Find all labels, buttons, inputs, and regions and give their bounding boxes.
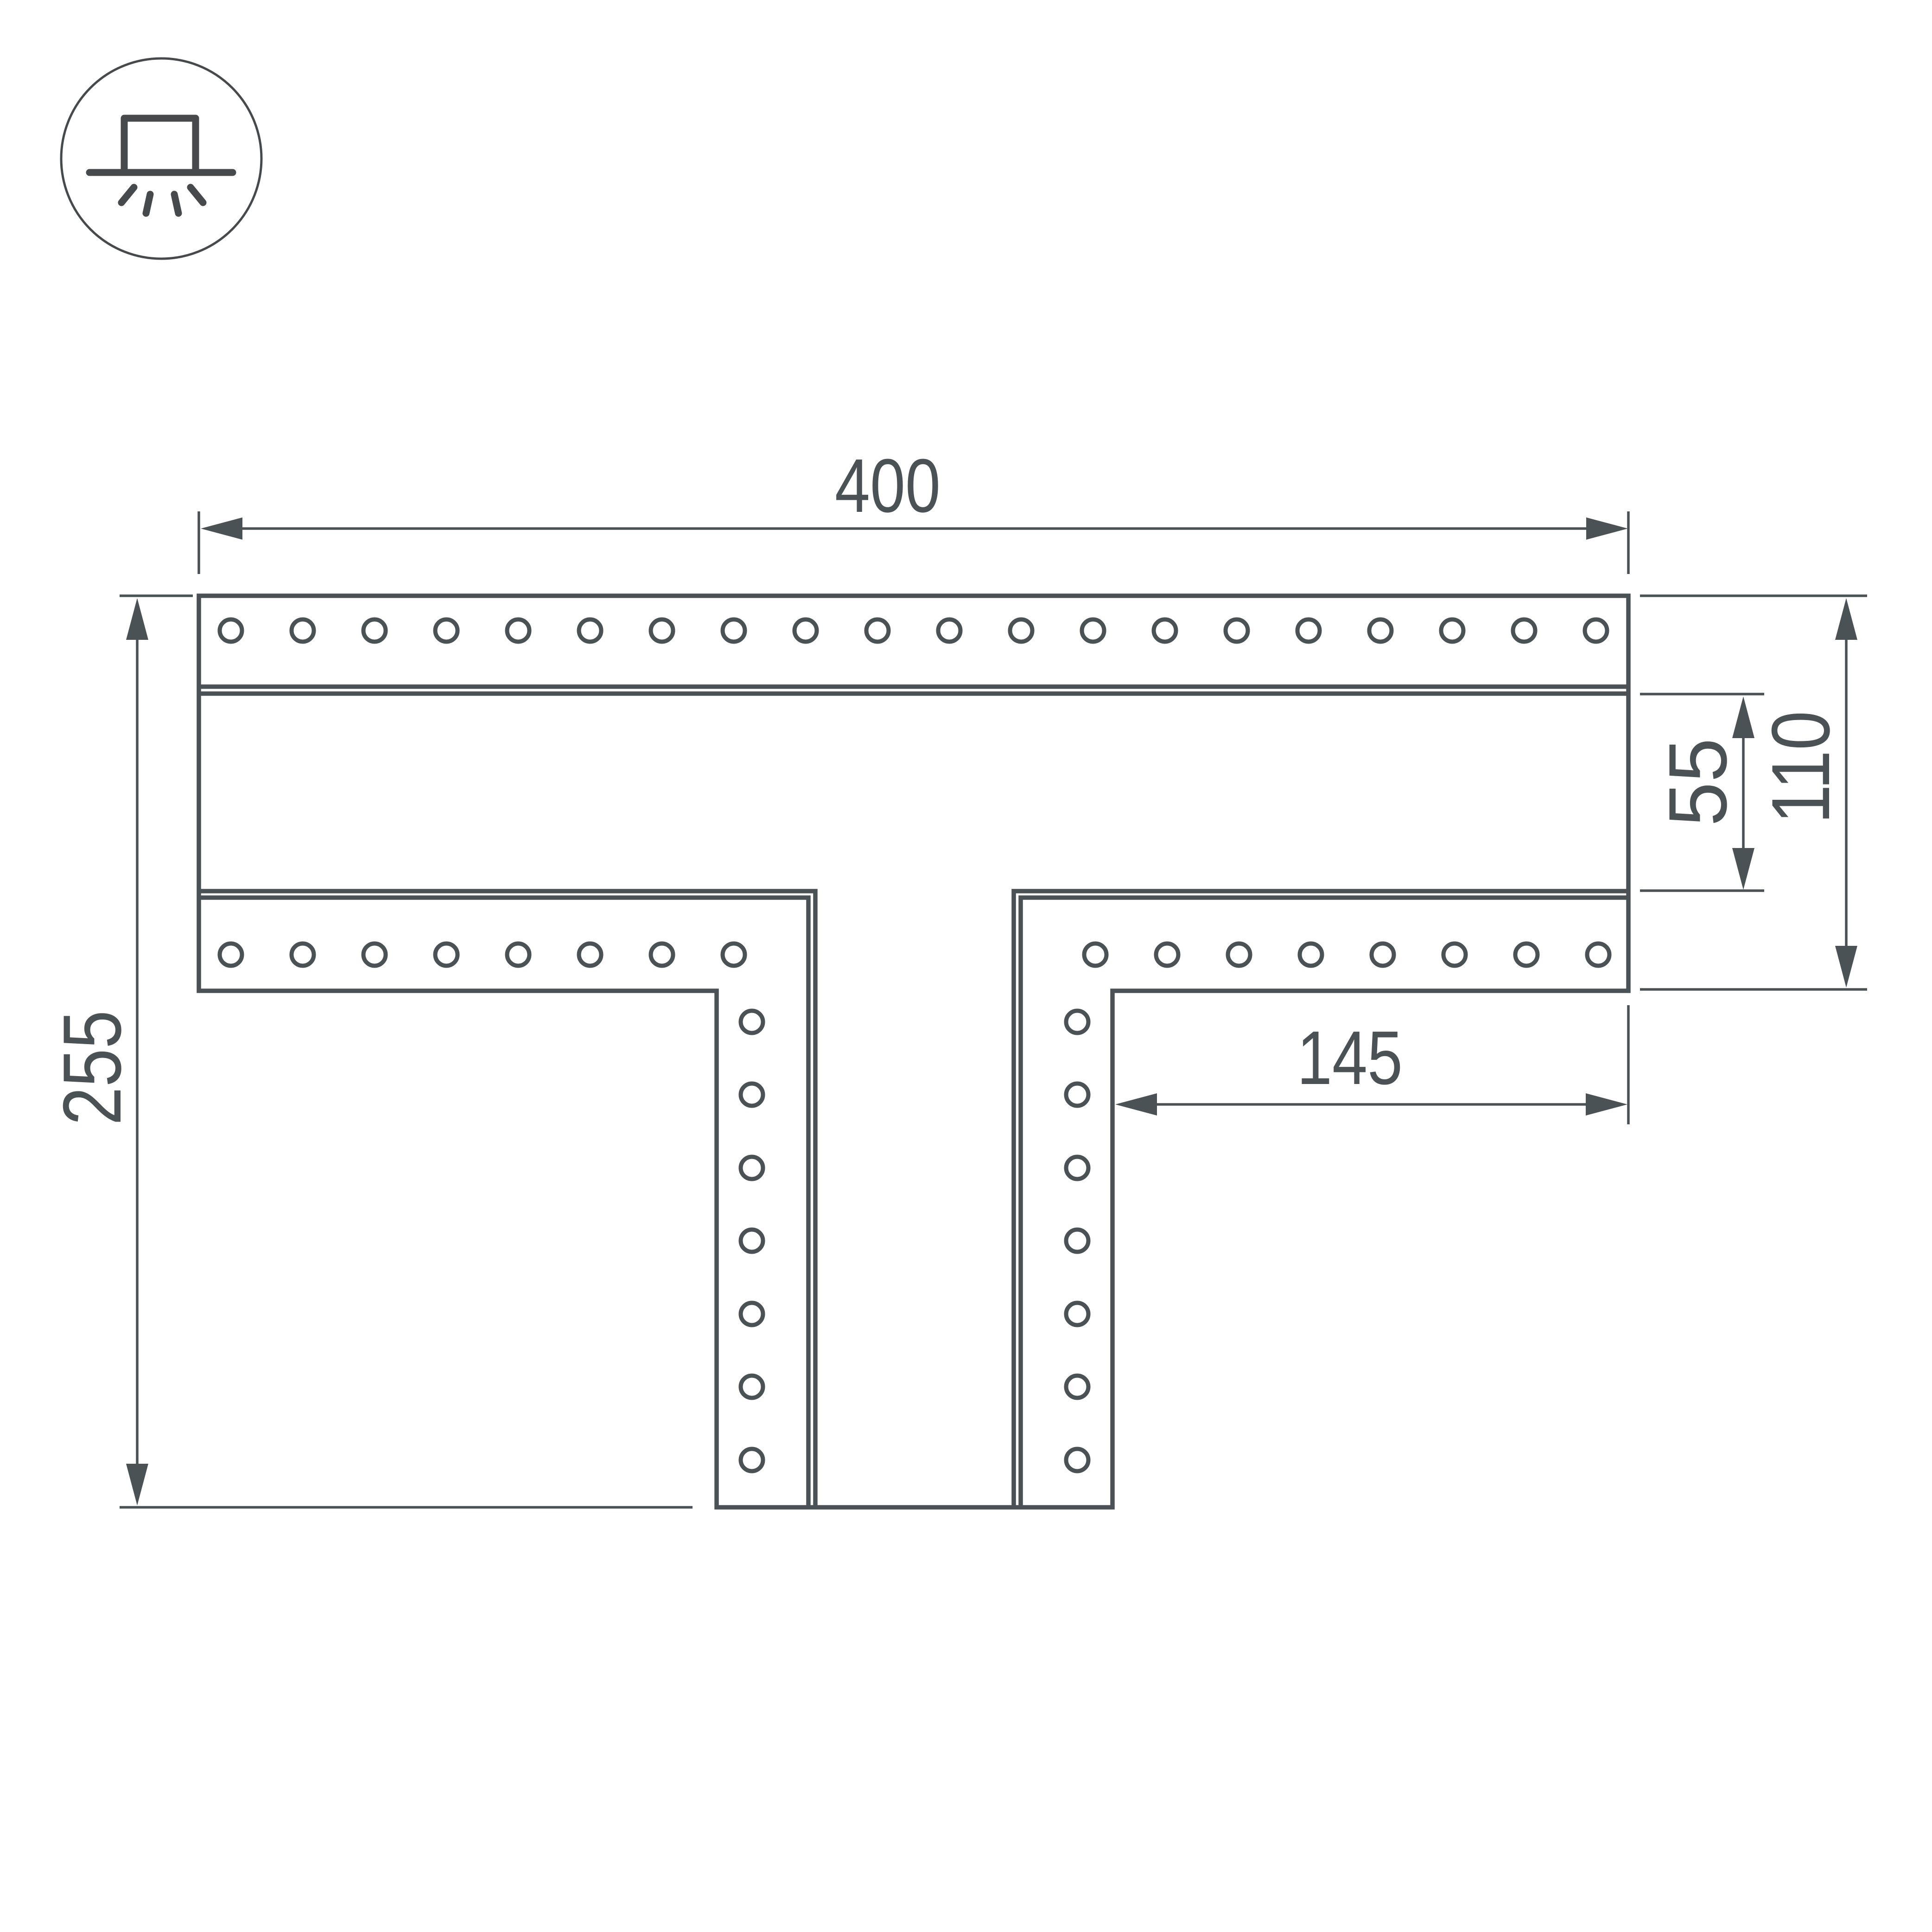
svg-text:55: 55 (1652, 738, 1744, 826)
svg-text:400: 400 (835, 443, 941, 528)
svg-text:145: 145 (1297, 1015, 1403, 1100)
svg-text:110: 110 (1754, 711, 1847, 824)
svg-text:255: 255 (46, 1010, 138, 1125)
